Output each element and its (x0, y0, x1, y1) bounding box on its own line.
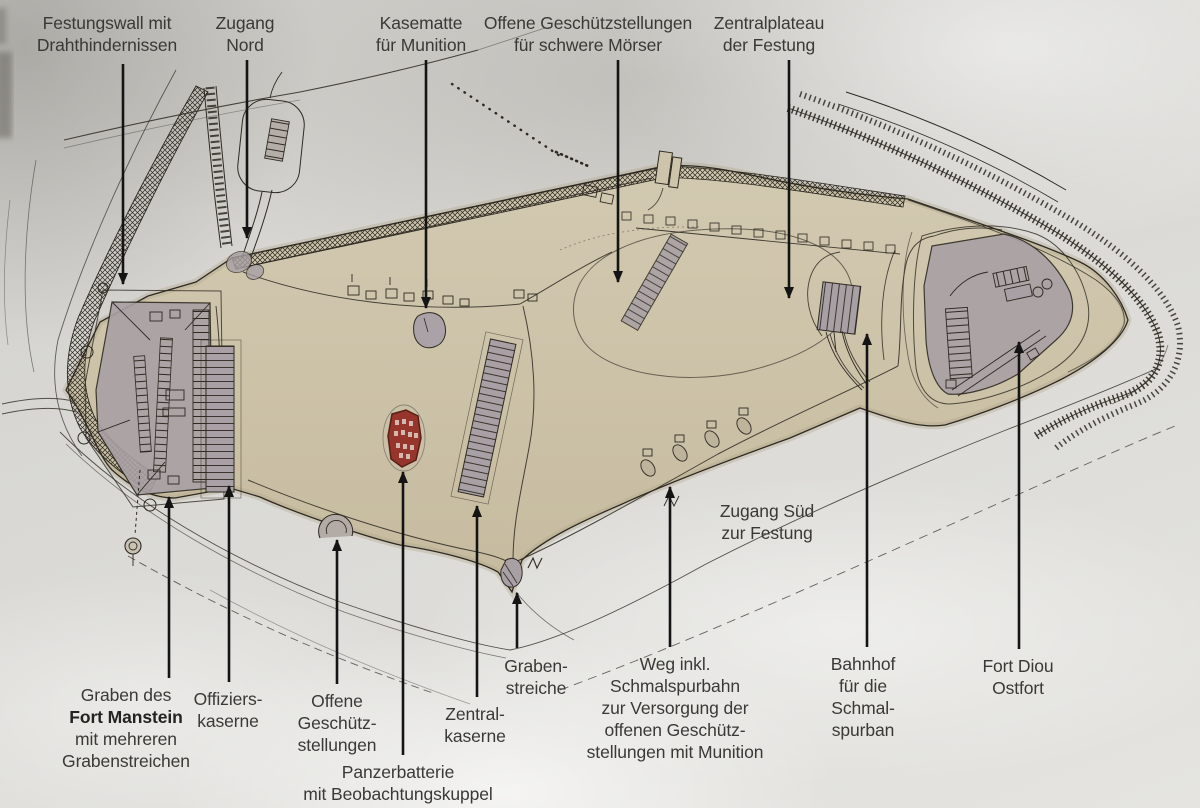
callout-line: Kasematte (376, 12, 466, 34)
callout-line: Festungswall mit (37, 12, 177, 34)
callout-line: Fort Diou (982, 655, 1053, 677)
callout-line: Bahnhof (831, 653, 896, 675)
callout-line: Weg inkl. (587, 653, 764, 675)
callout-panzerbatterie: Panzerbatteriemit Beobachtungskuppel (303, 761, 492, 805)
callout-line: Zugang Süd (720, 500, 814, 522)
callout-line: Schmal- (831, 697, 896, 719)
callout-fort-diou-ostfort: Fort DiouOstfort (982, 655, 1053, 699)
callout-zugang-sued: Zugang Südzur Festung (720, 500, 814, 544)
callout-line: kaserne (194, 710, 263, 732)
callout-line: Offiziers- (194, 688, 263, 710)
callout-line: Nord (216, 34, 275, 56)
callout-line: Offene Geschützstellungen (484, 12, 692, 34)
callout-grabenstreiche: Graben-streiche (504, 655, 568, 699)
callout-festungswall: Festungswall mitDrahthindernissen (37, 12, 177, 56)
callout-offene-geschuetzstellungen: OffeneGeschütz-stellungen (298, 690, 377, 756)
callout-line: Offene (298, 690, 377, 712)
kasematte-munition-structure (414, 313, 446, 348)
callout-line: für schwere Mörser (484, 34, 692, 56)
fort-manstein (78, 283, 224, 511)
panzerbatterie-building (383, 405, 425, 471)
callout-line: mit mehreren (62, 728, 190, 750)
callout-line: stellungen (298, 734, 377, 756)
callout-line: spurban (831, 719, 896, 741)
callout-line: Drahthindernissen (37, 34, 177, 56)
callout-line: Panzerbatterie (303, 761, 492, 783)
callout-zentralplateau: Zentralplateauder Festung (714, 12, 824, 56)
callout-line: für Munition (376, 34, 466, 56)
callout-bahnhof-schmalspurbahn: Bahnhoffür dieSchmal-spurban (831, 653, 896, 741)
callout-line: kaserne (444, 725, 506, 747)
callout-weg-schmalspurbahn: Weg inkl.Schmalspurbahnzur Versorgung de… (587, 653, 764, 763)
callout-offene-stellungen-moerser: Offene Geschützstellungenfür schwere Mör… (484, 12, 692, 56)
callout-line: Zugang (216, 12, 275, 34)
callout-line: streiche (504, 677, 568, 699)
callout-line: Fort Manstein (62, 706, 190, 728)
callout-line: Graben des (62, 684, 190, 706)
callout-line: Zentralplateau (714, 12, 824, 34)
callout-line: Schmalspurbahn (587, 675, 764, 697)
callout-line: der Festung (714, 34, 824, 56)
callout-line: offenen Geschütz- (587, 719, 764, 741)
callout-line: zur Versorgung der (587, 697, 764, 719)
callout-line: für die (831, 675, 896, 697)
callout-line: Geschütz- (298, 712, 377, 734)
callout-graben-fort-manstein: Graben desFort Mansteinmit mehrerenGrabe… (62, 684, 190, 772)
callout-line: zur Festung (720, 522, 814, 544)
paper-edge-shading (0, 8, 12, 138)
callout-line: Ostfort (982, 677, 1053, 699)
callout-zentralkaserne: Zentral-kaserne (444, 703, 506, 747)
callout-line: Zentral- (444, 703, 506, 725)
callout-zugang-nord: ZugangNord (216, 12, 275, 56)
callout-line: Grabenstreichen (62, 750, 190, 772)
fortress-plan: Festungswall mitDrahthindernissenZugangN… (0, 0, 1200, 808)
callout-offizierskaserne: Offiziers-kaserne (194, 688, 263, 732)
callout-line: Graben- (504, 655, 568, 677)
callout-line: mit Beobachtungskuppel (303, 783, 492, 805)
callout-kasematte-munition: Kasemattefür Munition (376, 12, 466, 56)
callout-line: stellungen mit Munition (587, 741, 764, 763)
